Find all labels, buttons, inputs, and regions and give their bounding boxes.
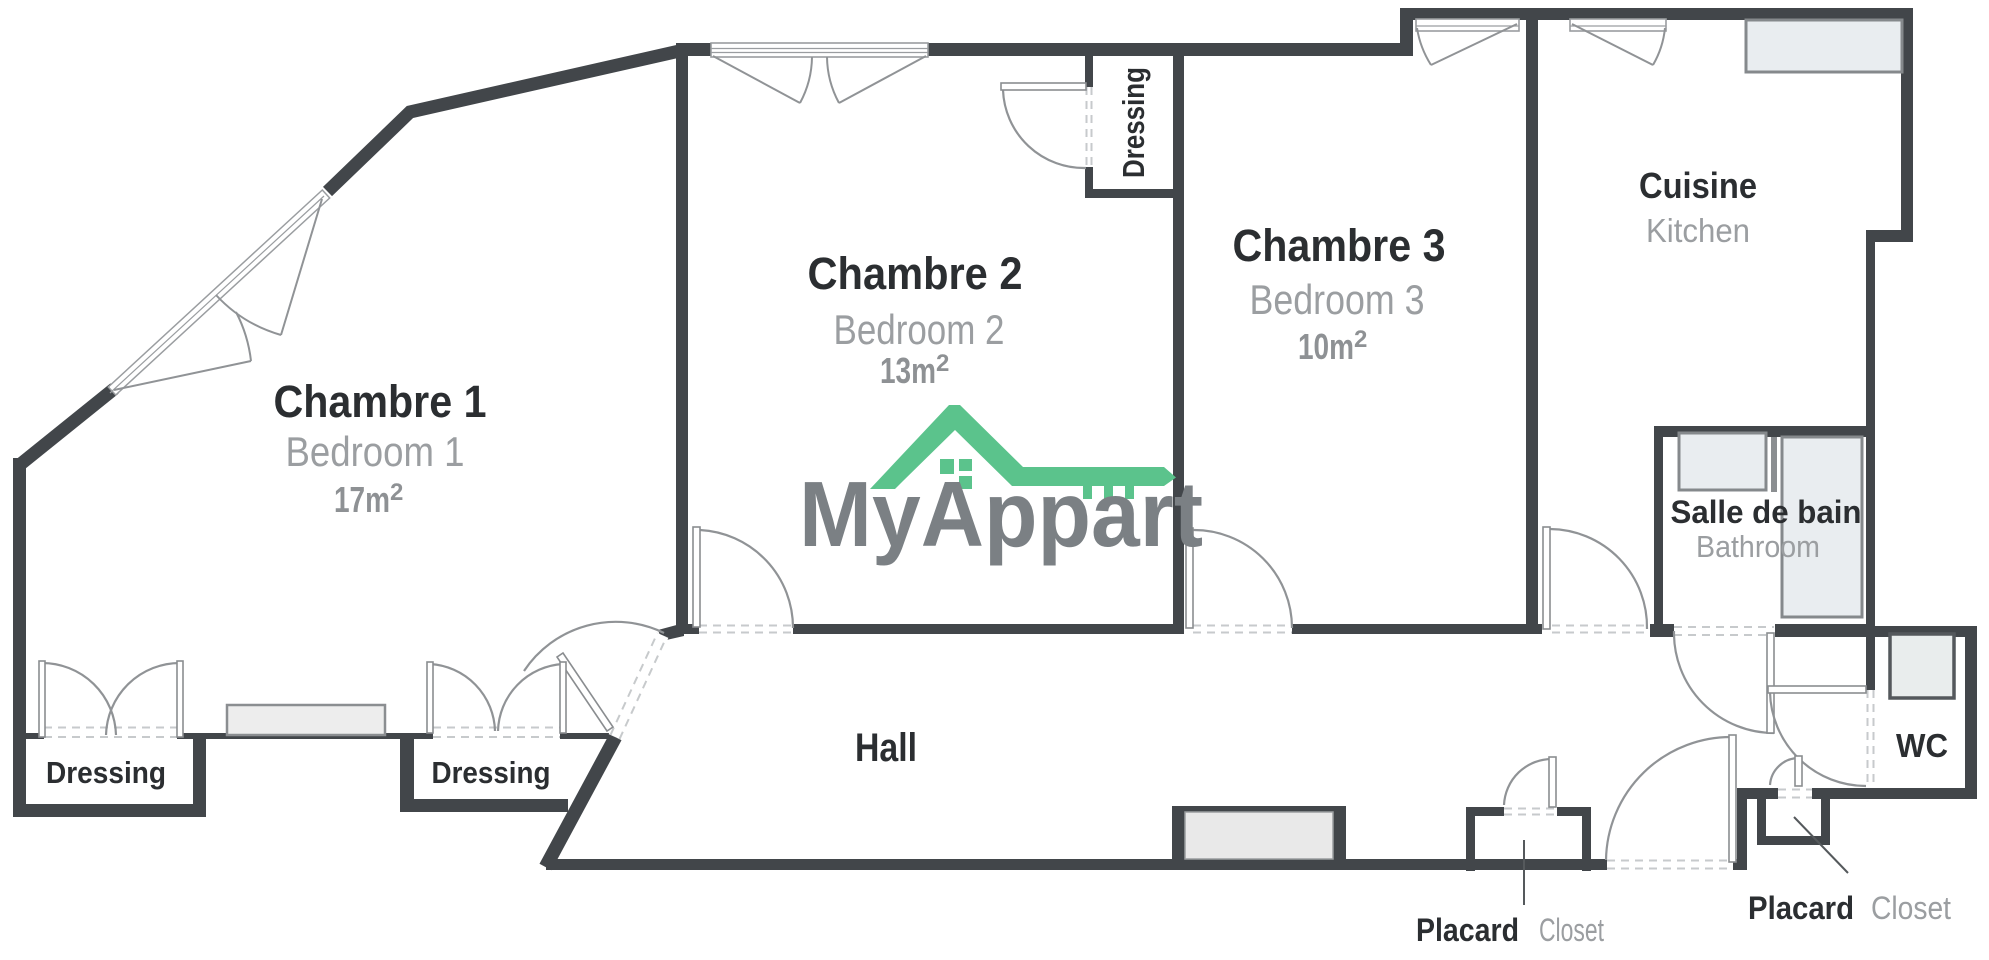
svg-text:Bedroom 1: Bedroom 1: [286, 428, 465, 475]
svg-text:Placard: Placard: [1748, 890, 1854, 926]
svg-text:Cuisine: Cuisine: [1639, 165, 1757, 206]
svg-text:Kitchen: Kitchen: [1646, 212, 1750, 249]
svg-text:Bedroom 3: Bedroom 3: [1250, 276, 1425, 323]
svg-text:Bedroom 2: Bedroom 2: [834, 306, 1005, 353]
svg-text:Placard: Placard: [1416, 912, 1519, 948]
svg-text:Chambre 3: Chambre 3: [1233, 220, 1446, 271]
svg-text:Closet: Closet: [1539, 912, 1604, 948]
svg-text:Dressing: Dressing: [432, 755, 551, 790]
svg-text:MyAppart: MyAppart: [799, 462, 1203, 566]
svg-text:Chambre 2: Chambre 2: [808, 248, 1023, 299]
svg-text:Salle de bain: Salle de bain: [1671, 494, 1862, 530]
svg-text:WC: WC: [1896, 727, 1948, 764]
svg-text:Closet: Closet: [1871, 890, 1951, 926]
svg-text:Bathroom: Bathroom: [1696, 529, 1820, 564]
svg-text:Dressing: Dressing: [46, 755, 166, 790]
svg-text:Chambre 1: Chambre 1: [274, 376, 487, 427]
svg-text:Dressing: Dressing: [1116, 67, 1151, 178]
svg-text:Hall: Hall: [855, 726, 917, 770]
